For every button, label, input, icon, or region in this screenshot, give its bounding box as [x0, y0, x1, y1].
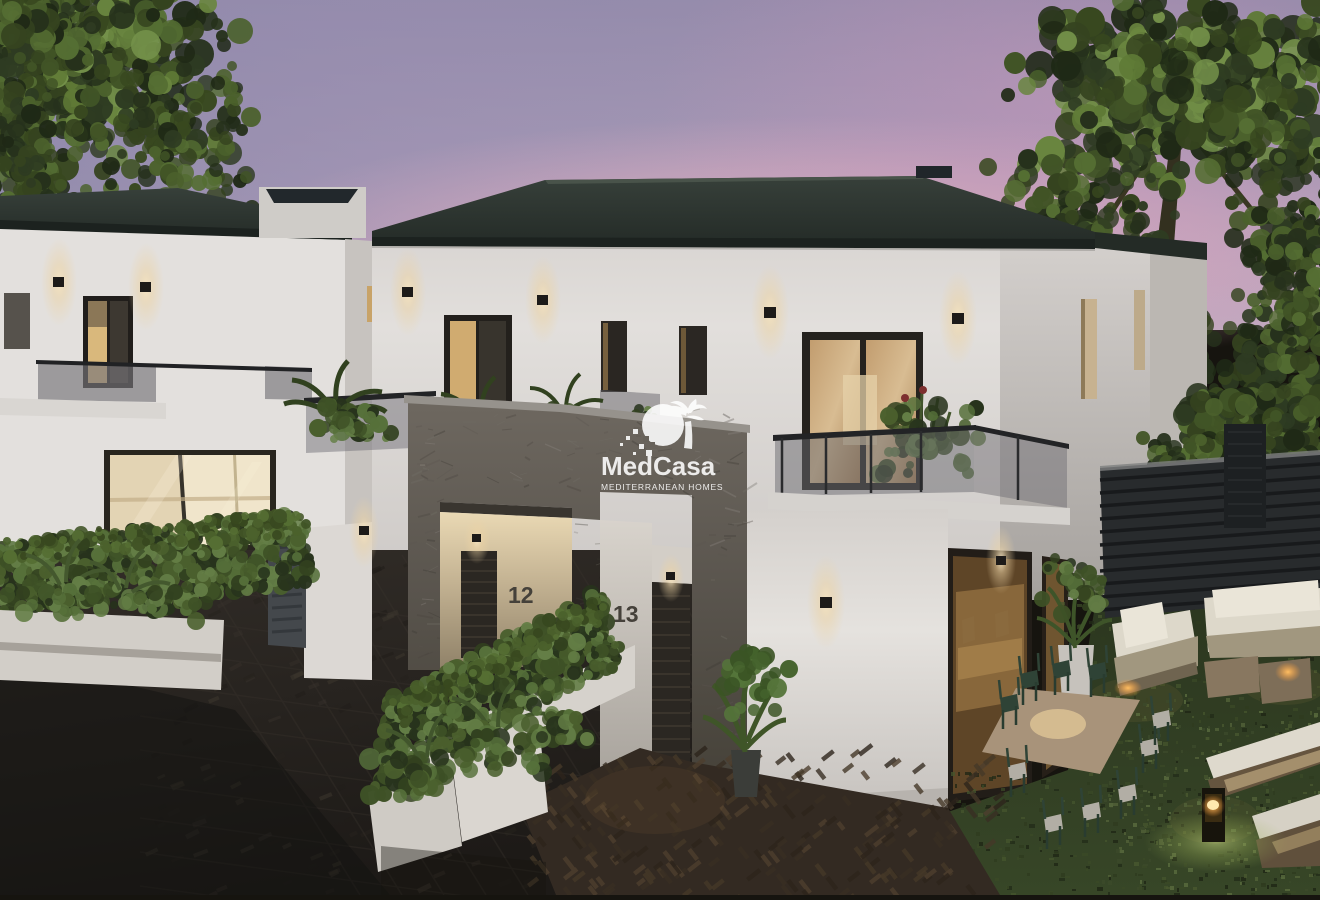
- svg-text:13: 13: [613, 601, 639, 627]
- svg-text:12: 12: [508, 582, 534, 608]
